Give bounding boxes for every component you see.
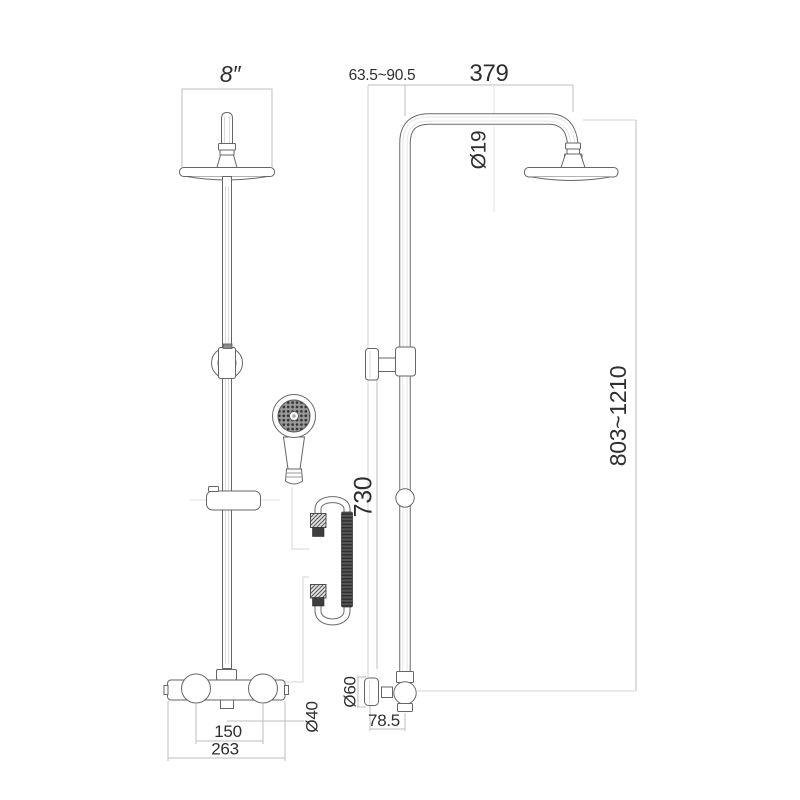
hose-connector-lower-sleeve — [313, 598, 325, 607]
slide-rail — [223, 177, 232, 669]
front-valve — [164, 670, 289, 709]
wall-bracket-mount — [219, 348, 236, 379]
hand-shower — [273, 395, 316, 485]
valve-handle-right — [249, 674, 278, 703]
head-size-label: 8″ — [220, 61, 241, 87]
slider-holder — [207, 487, 261, 511]
rail-to-valve-flange — [217, 670, 237, 681]
side-head-cone — [561, 154, 585, 168]
front-view — [164, 113, 316, 709]
bracket-arm — [379, 358, 398, 372]
pipe-diameter-label: Ø19 — [468, 131, 491, 170]
hose-corrugated-section — [342, 512, 353, 607]
side-wall-bracket — [366, 347, 416, 380]
slider-body — [207, 491, 261, 510]
side-head-nut-mid — [567, 149, 580, 154]
hose-connector-upper — [311, 514, 327, 528]
valve-handle-left — [182, 674, 211, 703]
side-rain-head-disc — [525, 168, 619, 178]
valve-end-cap-left — [164, 686, 168, 695]
front-rail — [223, 177, 232, 669]
bracket-pipe-collar — [396, 347, 416, 376]
hose-connector-lower — [311, 585, 327, 599]
side-valve-handle-disc — [365, 678, 379, 706]
wall-bracket-clip — [223, 344, 232, 349]
handle-diameter-label: Ø40 — [302, 701, 321, 732]
rail-length-label: 730 — [350, 477, 378, 518]
front-rain-head — [180, 113, 275, 181]
hose-connector-upper-sleeve — [313, 528, 325, 537]
shower-system-technical-drawing: 8″ 63.5~90.5 379 Ø19 803~1210 730 Ø60 78… — [0, 0, 800, 800]
valve-projection-label: 78.5 — [368, 711, 400, 730]
side-valve-stem — [382, 687, 393, 698]
side-riser-pipe — [405, 119, 573, 672]
hand-shower-handle — [284, 437, 305, 469]
hand-shower-centre-dot — [292, 414, 296, 418]
valve-width-label: 263 — [211, 740, 238, 759]
bracket-wall-flange — [366, 349, 379, 381]
rain-head-disc — [180, 168, 275, 177]
hose-valve-leader — [281, 577, 309, 682]
head-arm-stub — [222, 113, 233, 148]
arm-projection-label: 379 — [469, 60, 508, 87]
head-nut-upper — [219, 144, 236, 151]
valve-end-cap-right — [285, 686, 289, 695]
side-valve-top-fitting — [397, 672, 414, 683]
side-view — [365, 119, 619, 712]
adjustable-height-label: 803~1210 — [605, 366, 631, 467]
slider-lock-tab — [209, 487, 219, 492]
side-handle-diameter-label: Ø60 — [340, 676, 359, 707]
handset-hose-leader — [292, 487, 309, 549]
shower-hose — [311, 500, 353, 622]
head-cone — [217, 155, 237, 168]
handle-centres-label: 150 — [214, 722, 241, 741]
side-valve-body — [394, 682, 416, 704]
drawing-svg: 8″ 63.5~90.5 379 Ø19 803~1210 730 Ø60 78… — [0, 0, 800, 800]
side-valve — [365, 672, 417, 712]
side-head-nut-upper — [566, 143, 581, 149]
side-rain-head-underside — [532, 177, 610, 181]
valve-bottom-outlet — [221, 700, 234, 709]
wall-distance-label: 63.5~90.5 — [349, 67, 416, 84]
side-rain-head — [525, 143, 619, 181]
side-slider-ball — [396, 489, 414, 507]
